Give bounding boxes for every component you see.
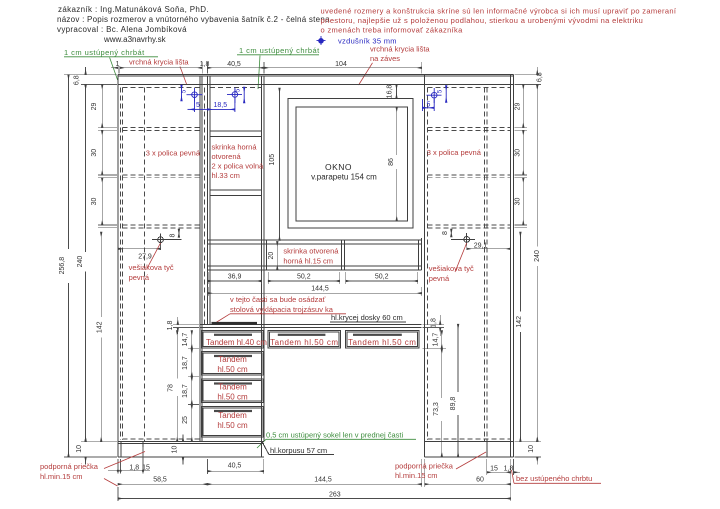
svg-text:86: 86: [388, 158, 395, 166]
svg-text:3 x polica pevná: 3 x polica pevná: [146, 149, 201, 158]
svg-text:30: 30: [515, 149, 522, 157]
svg-text:hl.50 cm: hl.50 cm: [217, 393, 248, 402]
svg-text:3 x polica pevná: 3 x polica pevná: [427, 148, 482, 157]
svg-text:hl.min.15 cm: hl.min.15 cm: [395, 471, 438, 480]
svg-text:1,8: 1,8: [167, 321, 174, 331]
svg-text:263: 263: [329, 491, 341, 498]
svg-text:6,8: 6,8: [73, 75, 80, 85]
svg-text:240: 240: [77, 256, 84, 268]
svg-text:10: 10: [76, 445, 83, 453]
svg-text:názov : Popis rozmerov a vnúto: názov : Popis rozmerov a vnútorného vyba…: [57, 15, 330, 24]
svg-text:1 cm ustúpený chrbát: 1 cm ustúpený chrbát: [239, 46, 320, 55]
svg-text:144,5: 144,5: [314, 477, 332, 484]
svg-text:10: 10: [172, 446, 179, 454]
svg-text:1: 1: [116, 61, 120, 68]
svg-text:73,3: 73,3: [433, 402, 440, 416]
svg-text:40,5: 40,5: [228, 462, 242, 469]
svg-text:18,7: 18,7: [182, 356, 189, 370]
svg-text:stolová vyklápacia trojzásuv k: stolová vyklápacia trojzásuv ka: [230, 305, 334, 314]
svg-text:vrchná krycia lišta: vrchná krycia lišta: [129, 58, 189, 67]
svg-text:60: 60: [476, 477, 484, 484]
svg-text:78: 78: [168, 384, 175, 392]
svg-text:50,2: 50,2: [297, 273, 311, 280]
svg-text:16,8: 16,8: [387, 85, 394, 99]
svg-text:10: 10: [528, 445, 535, 453]
svg-text:Tandem: Tandem: [218, 411, 247, 420]
svg-text:Tandem: Tandem: [218, 355, 247, 364]
svg-text:2 x polica volná: 2 x polica volná: [212, 162, 265, 171]
svg-text:1 cm ustúpený chrbát: 1 cm ustúpený chrbát: [64, 48, 145, 57]
svg-text:podporná priečka: podporná priečka: [40, 462, 99, 471]
svg-text:8: 8: [442, 231, 449, 235]
svg-text:142: 142: [516, 316, 523, 328]
svg-text:15: 15: [490, 466, 498, 473]
svg-text:priestoru, najlepšie už s polo: priestoru, najlepšie už s položenou podl…: [321, 16, 644, 25]
svg-text:Tandem hl.50 cm: Tandem hl.50 cm: [270, 338, 338, 347]
svg-text:bez ustúpeného chrbtu: bez ustúpeného chrbtu: [516, 474, 592, 483]
svg-text:29: 29: [91, 103, 98, 111]
svg-text:zákazník : Ing.Matunáková Soňa: zákazník : Ing.Matunáková Soňa, PhD.: [58, 5, 209, 14]
svg-text:o zmenách treba informovať zák: o zmenách treba informovať zákazníka: [321, 26, 464, 35]
svg-text:horná hl.15 cm: horná hl.15 cm: [283, 257, 333, 266]
svg-text:18,7: 18,7: [182, 384, 189, 398]
svg-text:pevná: pevná: [429, 274, 450, 283]
svg-text:v tejto časti sa bude osádzať: v tejto časti sa bude osádzať: [230, 295, 326, 304]
svg-text:5: 5: [196, 102, 200, 109]
svg-text:uvedené rozmery a konštrukcia: uvedené rozmery a konštrukcia skríne sú …: [321, 7, 677, 16]
svg-text:vrchná krycia lišta: vrchná krycia lišta: [370, 45, 430, 54]
svg-text:otvorená: otvorená: [212, 152, 242, 161]
svg-text:25: 25: [182, 416, 189, 424]
svg-text:142: 142: [97, 321, 104, 333]
svg-text:pevná: pevná: [129, 273, 150, 282]
svg-text:1,8: 1,8: [431, 318, 438, 328]
svg-text:240: 240: [534, 250, 541, 262]
svg-text:14,7: 14,7: [432, 333, 439, 347]
svg-text:www.a3navrhy.sk: www.a3navrhy.sk: [103, 35, 167, 44]
svg-text:40,5: 40,5: [227, 61, 241, 68]
svg-text:105: 105: [269, 154, 276, 166]
svg-text:8: 8: [170, 233, 177, 237]
svg-text:Tandem: Tandem: [218, 383, 247, 392]
svg-text:hl.korpusu 57 cm: hl.korpusu 57 cm: [270, 446, 327, 455]
svg-text:hl.33 cm: hl.33 cm: [212, 171, 240, 180]
svg-text:14,7: 14,7: [182, 333, 189, 347]
svg-text:36,9: 36,9: [228, 273, 242, 280]
svg-text:vypracoval : Bc. Alena Jombíko: vypracoval : Bc. Alena Jombíková: [57, 25, 187, 34]
svg-text:Tandem hl.40 cm: Tandem hl.40 cm: [206, 338, 267, 347]
svg-text:podporná priečka: podporná priečka: [395, 462, 454, 471]
svg-text:27,9: 27,9: [138, 254, 152, 261]
svg-text:1,8: 1,8: [200, 61, 210, 68]
svg-text:hl.min.15 cm: hl.min.15 cm: [40, 472, 83, 481]
svg-text:30: 30: [515, 198, 522, 206]
svg-text:skrinka horná: skrinka horná: [212, 143, 258, 152]
svg-text:18,5: 18,5: [214, 102, 228, 109]
svg-text:58,5: 58,5: [153, 477, 167, 484]
svg-text:vešiakova tyč: vešiakova tyč: [429, 264, 474, 273]
svg-text:20: 20: [268, 252, 275, 260]
svg-text:30: 30: [91, 198, 98, 206]
svg-text:0,5 cm ustúpený sokel len v pr: 0,5 cm ustúpený sokel len v prednej čast…: [266, 431, 403, 440]
svg-text:144,5: 144,5: [311, 286, 329, 293]
svg-text:30: 30: [91, 149, 98, 157]
svg-text:OKNO: OKNO: [325, 162, 352, 172]
svg-text:v.parapetu 154 cm: v.parapetu 154 cm: [311, 173, 377, 182]
svg-text:Tandem hl.50 cm: Tandem hl.50 cm: [348, 338, 416, 347]
svg-text:skrinka otvorená: skrinka otvorená: [283, 247, 339, 256]
svg-text:vešiakova tyč: vešiakova tyč: [129, 263, 174, 272]
svg-text:104: 104: [335, 61, 347, 68]
svg-text:hl.krycej dosky 60 cm: hl.krycej dosky 60 cm: [331, 313, 403, 322]
svg-text:256,8: 256,8: [59, 257, 66, 275]
svg-text:hl.50 cm: hl.50 cm: [217, 365, 248, 374]
svg-text:89,8: 89,8: [450, 397, 457, 411]
svg-text:29,1: 29,1: [474, 242, 488, 249]
svg-text:29: 29: [515, 103, 522, 111]
svg-text:50,2: 50,2: [375, 273, 389, 280]
svg-text:hl.50 cm: hl.50 cm: [217, 421, 248, 430]
svg-text:na záves: na záves: [370, 54, 400, 63]
